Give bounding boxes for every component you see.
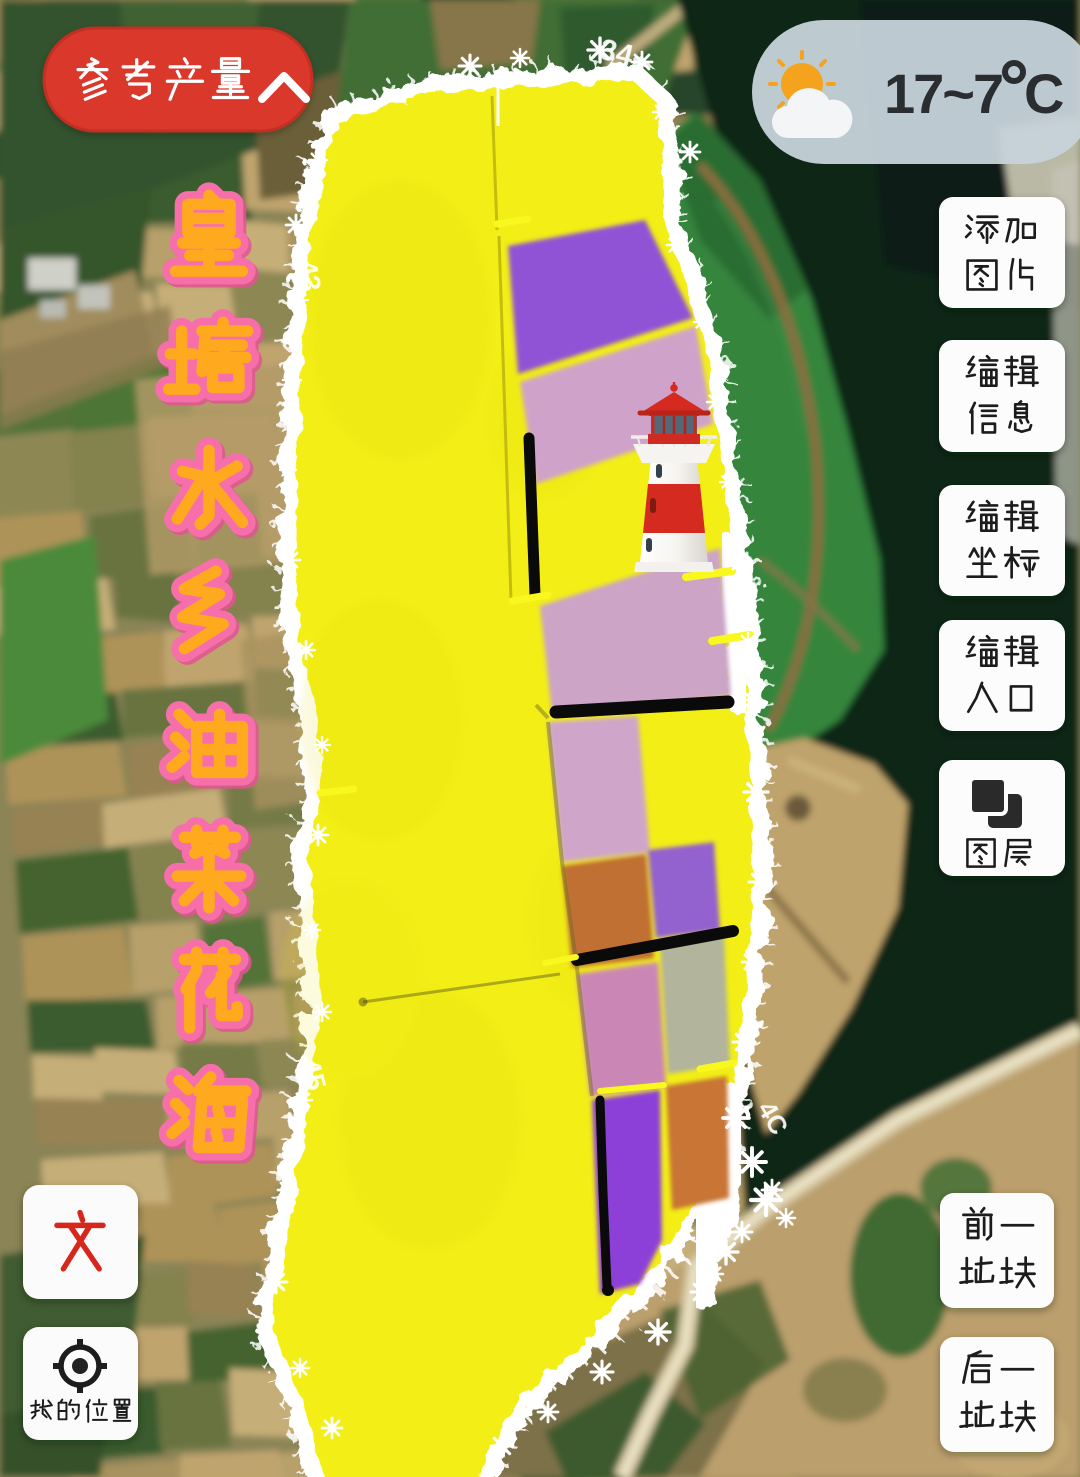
svg-text:17~7: 17~7 xyxy=(884,62,1002,125)
svg-text:43: 43 xyxy=(291,258,327,294)
svg-text:C: C xyxy=(1024,62,1064,125)
